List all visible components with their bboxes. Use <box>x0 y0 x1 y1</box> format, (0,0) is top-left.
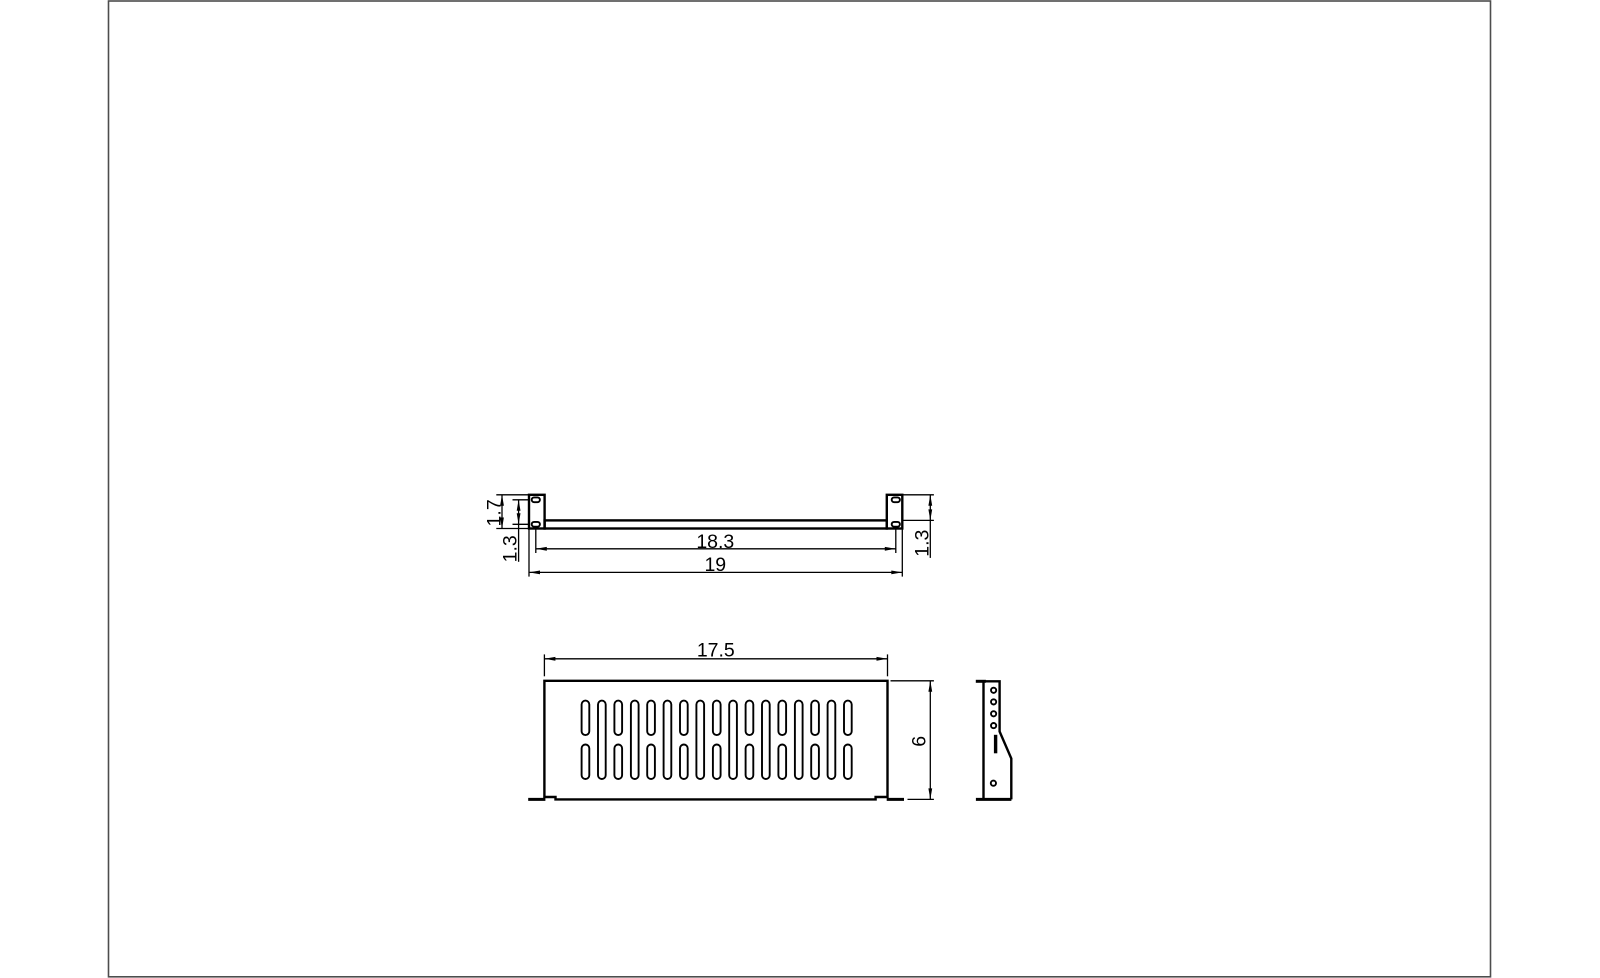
svg-text:1.3: 1.3 <box>499 535 521 562</box>
svg-text:1.7: 1.7 <box>483 499 505 526</box>
svg-text:19: 19 <box>704 554 726 576</box>
svg-text:1.3: 1.3 <box>912 530 934 557</box>
svg-text:6: 6 <box>909 736 931 747</box>
svg-text:18.3: 18.3 <box>696 531 734 553</box>
svg-text:17.5: 17.5 <box>697 640 735 662</box>
